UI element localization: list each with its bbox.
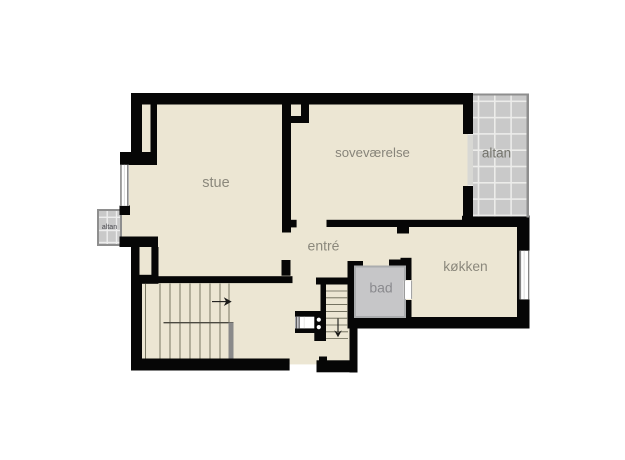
svg-text:soveværelse: soveværelse [335,145,410,160]
svg-text:altan: altan [482,146,511,161]
svg-text:altan: altan [102,224,117,231]
svg-text:entré: entré [308,238,340,254]
svg-text:køkken: køkken [443,259,487,274]
svg-text:stue: stue [202,175,229,191]
svg-text:bad: bad [369,280,392,296]
